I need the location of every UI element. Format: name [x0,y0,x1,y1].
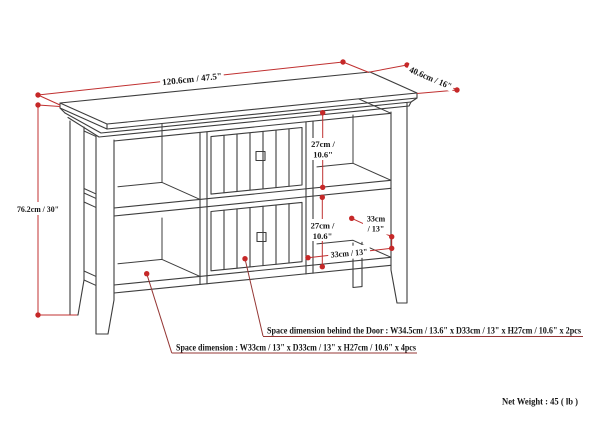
left-lower-cubby [118,218,200,276]
width-dim-label: 120.6cm / 47.5" [162,71,223,87]
dot-lower-opening-top [320,195,325,200]
back-left-leg [70,121,84,315]
note-leaders [147,259,583,353]
dot-upper-opening-top [320,110,325,115]
shelf-depth-label-line2: / 13" [367,225,385,234]
dot-opening-width-right [389,246,394,251]
dot-upper-opening-bottom [320,185,325,190]
dot-height-bottom [35,312,40,317]
space-note-leader [147,274,172,353]
middle-shelf-top [114,180,391,208]
front-rails [114,113,391,293]
dot-shelf-depth-back [349,216,354,221]
height-dim-leader-top [38,105,60,107]
opening-width-label-group: 33cm / 13" [328,244,371,261]
side-bottom-rail [84,271,96,285]
height-dim-label: 76.2cm / 30" [17,204,59,214]
dimension-dots [35,59,459,317]
dot-door-note [242,256,247,261]
dot-opening-width-left [305,255,310,260]
tabletop [60,72,417,137]
diagram-canvas: 120.6cm / 47.5" 40.6cm / 16" 76.2cm / 30… [0,0,600,424]
tabletop-left-edge [60,103,107,129]
width-dim-leader-right [343,62,369,73]
dot-space-note [144,271,149,276]
dot-width-right [340,59,345,64]
net-weight-label: Net Weight : 45 ( lb ) [502,397,578,408]
note-behind-door: Space dimension behind the Door : W34.5c… [267,326,581,336]
bottom-shelf-edge [114,257,391,285]
width-dim-leader-left [38,95,60,105]
furniture-drawing [60,72,417,334]
width-dim-label-group: 120.6cm / 47.5" [159,68,224,88]
upper-opening-label-line1: 27cm / [311,139,335,149]
depth-dim-label-group: 40.6cm / 16" [406,61,457,93]
lower-opening-label-line2: 10.6" [313,231,333,241]
dot-width-left [35,92,40,97]
front-left-leg [96,136,114,334]
depth-dim-leader-back [370,65,407,72]
shelf-depth-label-line1: 33cm [367,215,386,224]
side-rails [84,131,96,285]
front-right-leg [391,103,407,303]
furniture-dimension-diagram: 120.6cm / 47.5" 40.6cm / 16" 76.2cm / 30… [0,0,600,424]
dot-lower-opening-bottom [320,264,325,269]
dot-height-top [35,102,40,107]
left-upper-cubby [118,124,200,199]
upper-door [211,128,302,195]
lower-opening-label-line1: 27cm / [311,221,335,231]
lower-door-knob [257,233,266,242]
dot-shelf-depth-front [389,234,394,239]
upper-opening-label-line2: 10.6" [313,150,333,160]
left-post [200,132,207,285]
tabletop-front-edge [107,93,417,129]
legs [70,103,407,334]
upper-door-knob [256,152,265,161]
middle-shelf-bottom [114,188,391,216]
note-space-dimension: Space dimension : W33cm / 13" x D33cm / … [176,343,416,353]
side-middle-rail [84,189,96,208]
lower-door [211,202,302,270]
dot-depth-front [454,87,459,92]
